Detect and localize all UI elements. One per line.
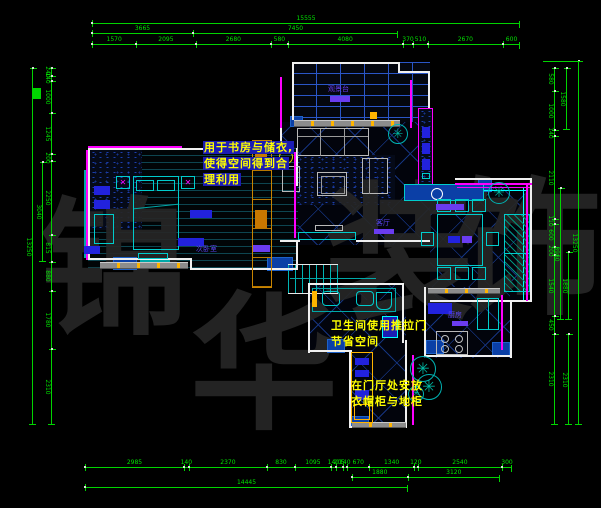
table-decor <box>462 236 472 243</box>
appliance <box>422 127 430 138</box>
dim-segment: 1340 <box>369 467 413 468</box>
wall-segment <box>296 240 298 270</box>
burner-icon <box>441 345 449 353</box>
dim-segment: 3665 <box>92 33 193 34</box>
dining-table <box>437 214 483 266</box>
dim-value: 3120 <box>446 470 461 476</box>
dim-segment: 580 <box>271 44 287 45</box>
dim-value: 2670 <box>458 37 473 43</box>
dim-value: 120 <box>410 460 421 466</box>
room-label-bedroom: 次卧室 <box>196 246 217 253</box>
dim-value: 1095 <box>305 460 320 466</box>
dim-value: 580 <box>274 37 285 43</box>
wall-accent <box>88 146 182 148</box>
wall-segment <box>455 178 532 180</box>
wall-segment <box>88 148 90 260</box>
dim-value: 4080 <box>338 37 353 43</box>
sofa <box>297 128 369 156</box>
dim-segment: 2250 <box>51 161 52 235</box>
dim-segment: 14445 <box>85 487 408 488</box>
dim-segment: 450 <box>554 316 555 334</box>
dim-value: 2095 <box>158 37 173 43</box>
annotation-line: 使得空间得到合 <box>203 157 289 170</box>
dim-value: 2985 <box>127 460 142 466</box>
bed-bench <box>138 253 168 259</box>
dim-value: 140 <box>339 460 350 466</box>
wall-accent <box>280 77 282 128</box>
dining-chair <box>472 267 486 280</box>
appliance-strip <box>418 108 433 186</box>
label-underline <box>436 204 464 210</box>
annotation-line: 衣帽柜与地柜 <box>351 395 423 408</box>
dim-segment: 1540 <box>554 255 555 316</box>
dim-extension-line <box>543 61 580 62</box>
dim-value: 880 <box>44 270 50 281</box>
coffee-table <box>317 172 347 196</box>
dim-value: 580 <box>547 74 553 85</box>
dim-segment: 2540 <box>418 467 502 468</box>
dim-segment: 7450 <box>193 33 398 34</box>
dim-segment: 2985 <box>85 467 184 468</box>
wall-segment <box>530 178 532 302</box>
wall-segment <box>308 283 310 353</box>
appliance <box>422 159 430 170</box>
watermark-char-2: 华 <box>190 290 338 438</box>
armchair-seam <box>369 159 370 194</box>
dim-value: 7450 <box>288 26 303 32</box>
burner-icon <box>455 345 463 353</box>
coffee-table-inner <box>321 176 345 194</box>
dim-value: 1340 <box>384 460 399 466</box>
dim-value: 3980 <box>553 246 559 261</box>
dim-value: 510 <box>415 37 426 43</box>
dim-segment: 2370 <box>189 467 268 468</box>
dining-chair <box>486 232 499 246</box>
dim-segment: 1880 <box>352 477 408 478</box>
dim-value: 1880 <box>372 470 387 476</box>
dim-value: 2680 <box>226 37 241 43</box>
dim-segment: 815 <box>51 235 52 262</box>
dim-value: 300 <box>501 460 512 466</box>
dim-segment: 1570 <box>92 44 136 45</box>
dim-value: 140 <box>44 72 50 83</box>
annotation-line: 在门厅处安放 <box>351 379 423 392</box>
dim-segment: 3120 <box>408 477 500 478</box>
wall-segment <box>308 283 404 285</box>
dim-value: 3665 <box>135 26 150 32</box>
dim-segment: 13250 <box>32 68 33 425</box>
dim-segment: 2095 <box>136 44 195 45</box>
label-underline <box>374 229 394 234</box>
armchair <box>362 158 388 194</box>
pillow <box>136 180 154 191</box>
wardrobe-item <box>355 370 369 377</box>
stair-handrail <box>290 278 376 279</box>
dim-segment: 880 <box>51 262 52 291</box>
wall-segment <box>424 355 512 357</box>
wall-accent <box>294 152 296 238</box>
dim-segment: 2680 <box>196 44 272 45</box>
wall-segment <box>292 62 294 120</box>
sink <box>356 291 374 306</box>
dim-value: 600 <box>547 230 553 241</box>
dining-chair <box>455 267 469 280</box>
wall-accent <box>526 183 528 301</box>
dim-segment: 13250 <box>578 61 579 425</box>
dim-segment: 580 <box>554 68 555 91</box>
wardrobe-item <box>355 358 369 365</box>
label-underline <box>330 96 350 102</box>
burner-icon <box>441 335 449 343</box>
wardrobe-item <box>253 245 270 252</box>
dim-value: 2370 <box>220 460 235 466</box>
dim-segment: 510 <box>413 44 427 45</box>
side-cabinet <box>94 214 114 244</box>
dim-value: 1570 <box>107 37 122 43</box>
dim-value: 13250 <box>25 237 31 256</box>
dim-segment: 3040 <box>42 162 43 262</box>
dim-value: 1540 <box>547 278 553 293</box>
plant-icon: ✳ <box>488 182 510 204</box>
label-underline <box>452 321 468 326</box>
marker <box>370 112 377 119</box>
plant-icon: ✳ <box>388 124 408 144</box>
dim-segment: 1245 <box>51 113 52 154</box>
sofa-seam <box>298 136 368 137</box>
wall-segment <box>280 240 300 242</box>
dim-value: 110 <box>547 216 553 227</box>
dim-value: 2540 <box>452 460 467 466</box>
dim-value: 140 <box>547 127 553 138</box>
sofa-seam <box>320 129 321 156</box>
dim-value: 815 <box>44 243 50 254</box>
dim-value: 670 <box>353 460 364 466</box>
dim-value: 2310 <box>561 372 567 387</box>
appliance <box>422 143 430 154</box>
dim-segment: 3980 <box>560 188 561 320</box>
dim-segment: 830 <box>267 467 295 468</box>
dining-chair <box>437 267 451 280</box>
wall-segment <box>308 350 352 352</box>
dim-value: 1580 <box>559 91 565 106</box>
dim-value: 830 <box>275 460 286 466</box>
room-label-balcony: 观景台 <box>328 86 349 93</box>
dining-chair <box>421 232 434 246</box>
dim-value: 2250 <box>44 190 50 205</box>
dim-value: 1000 <box>44 89 50 104</box>
dim-value: 450 <box>547 319 553 330</box>
wardrobe-drawer <box>255 210 267 228</box>
dim-segment: 1880 <box>568 252 569 320</box>
dim-segment: 600 <box>503 44 520 45</box>
dim-value: 1245 <box>44 126 50 141</box>
annotation-line: 节省空间 <box>331 335 379 348</box>
dim-value: 14445 <box>237 480 256 486</box>
annotation-line: 理利用 <box>203 173 241 186</box>
wall-accent <box>410 80 412 128</box>
nightstand: ✕ <box>181 176 195 189</box>
annotation-line: 卫生间使用推拉门 <box>331 319 427 332</box>
dim-value: 15555 <box>296 16 315 22</box>
sink <box>322 291 340 306</box>
dim-segment: 1580 <box>566 68 567 130</box>
annotation-line: 用于书房与储衣, <box>203 141 294 154</box>
toilet <box>376 292 392 310</box>
window-sill <box>428 288 500 294</box>
dim-value: 1780 <box>44 312 50 327</box>
sofa-seam <box>344 129 345 156</box>
dim-segment: 1780 <box>51 291 52 350</box>
wall-accent <box>86 150 88 260</box>
dim-segment: 15555 <box>92 23 520 24</box>
dim-segment: 300 <box>502 467 512 468</box>
dim-value: 2310 <box>547 372 553 387</box>
section-marker <box>33 88 41 99</box>
wall-segment <box>510 300 512 358</box>
dim-segment: 2310 <box>554 334 555 425</box>
dim-value: 1880 <box>561 278 567 293</box>
appliance <box>422 173 430 179</box>
cad-floor-plan: 锦 华 装 饰 <box>0 0 601 508</box>
dim-segment: 1000 <box>51 81 52 114</box>
dining-chair <box>472 199 486 212</box>
dim-segment: 1000 <box>554 91 555 130</box>
dim-value: 2310 <box>44 379 50 394</box>
cabinet-item <box>94 200 110 209</box>
annotation-entry: 在门厅处安放 衣帽柜与地柜 <box>351 378 423 410</box>
dim-value: 2110 <box>547 170 553 185</box>
burner-icon <box>455 335 463 343</box>
wall-accent <box>501 295 503 350</box>
dim-segment: 4080 <box>288 44 403 45</box>
fixture-accent <box>312 291 317 307</box>
wall-segment <box>356 240 430 242</box>
dim-value: 1000 <box>547 103 553 118</box>
annotation-study: 用于书房与储衣, 使得空间得到合 理利用 <box>203 140 294 188</box>
tv <box>315 225 343 231</box>
dim-segment: 2110 <box>554 136 555 219</box>
wall-segment <box>398 71 430 73</box>
table-decor <box>448 236 460 243</box>
room-label-kitchen: 厨房 <box>448 312 462 319</box>
dim-segment: 670 <box>347 467 369 468</box>
wall-segment <box>190 268 298 270</box>
dim-segment: 2310 <box>51 349 52 425</box>
dim-segment: 1095 <box>295 467 331 468</box>
tv-cabinet <box>298 232 356 240</box>
dim-value: 13250 <box>571 233 577 252</box>
window-sill <box>294 120 400 127</box>
stove <box>436 331 468 355</box>
dim-segment: 2310 <box>568 334 569 425</box>
annotation-bathroom: 卫生间使用推拉门 节省空间 <box>331 318 427 350</box>
cabinet-item <box>190 210 212 218</box>
cabinet-item <box>94 186 110 195</box>
dim-segment: 2670 <box>428 44 503 45</box>
room-label-living: 客厅 <box>376 220 390 227</box>
wall-segment <box>292 62 400 64</box>
cabinet-item <box>84 246 100 254</box>
window-sill <box>100 262 188 269</box>
dim-value: 140 <box>181 460 192 466</box>
dim-value: 3040 <box>35 204 41 219</box>
nightstand: ✕ <box>116 176 130 189</box>
pillow <box>157 180 175 191</box>
dim-value: 600 <box>506 37 517 43</box>
fridge <box>477 298 499 330</box>
fridge-divider <box>488 299 489 329</box>
dim-segment: 600 <box>554 224 555 248</box>
